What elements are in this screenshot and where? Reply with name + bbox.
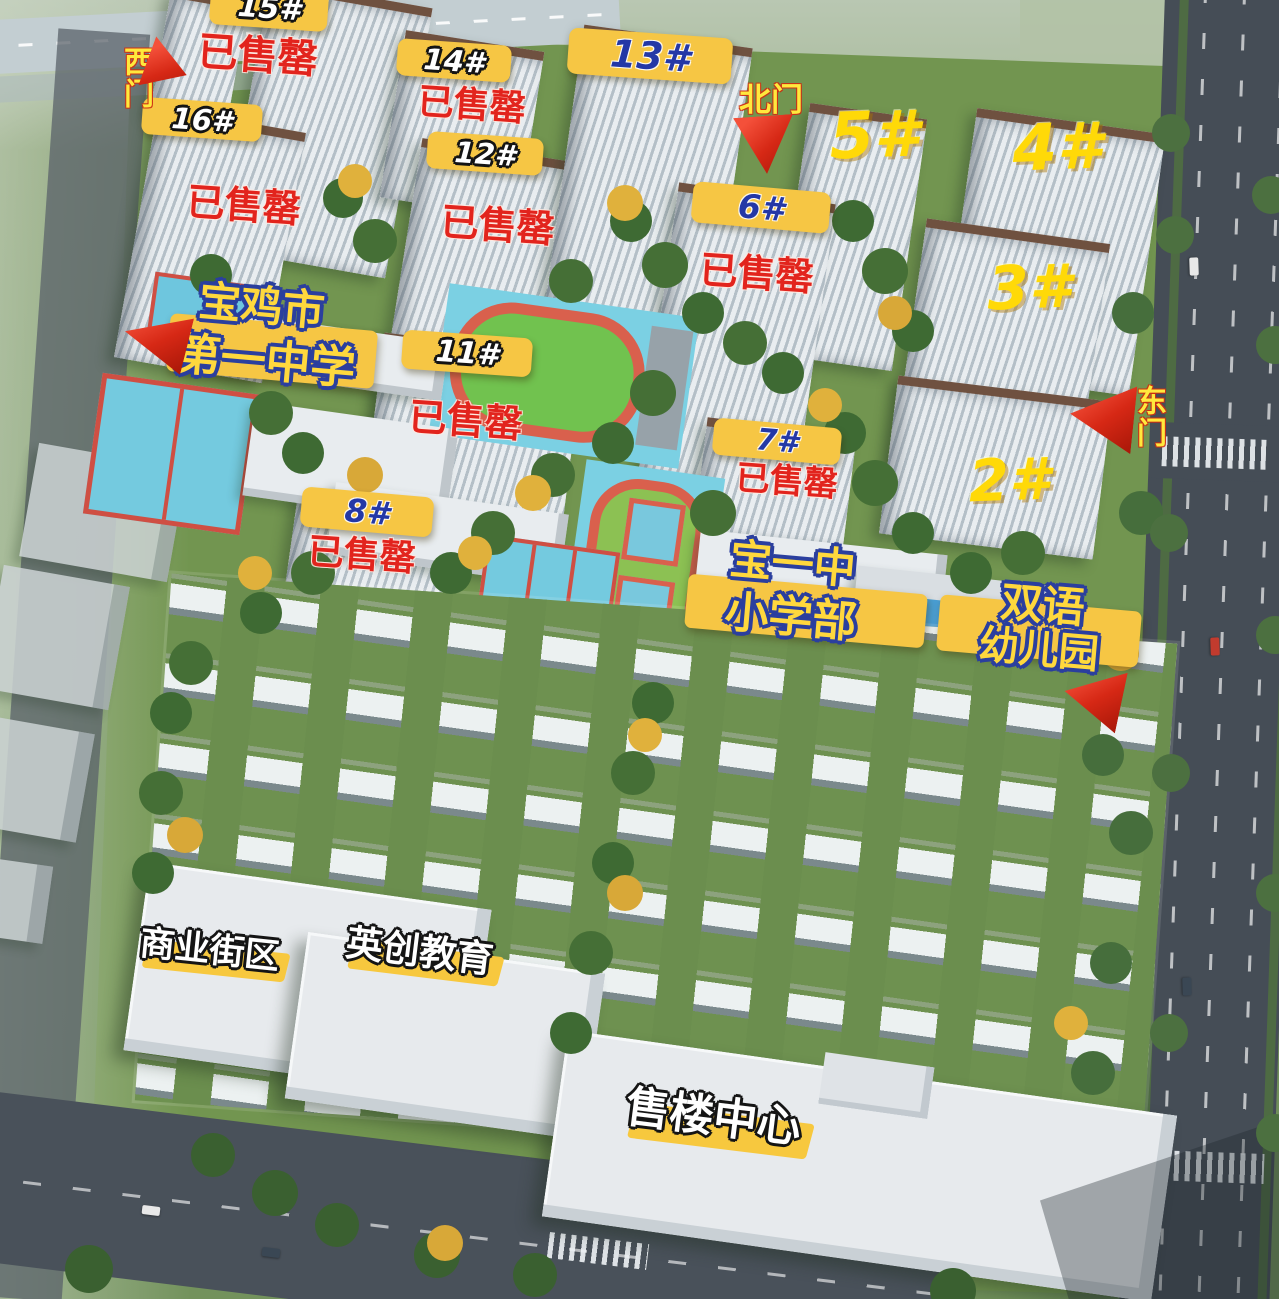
primary-school-label-line2: 小学部 — [722, 575, 859, 650]
car — [1189, 257, 1199, 275]
building-label-2: 2# — [967, 445, 1050, 516]
building-number: 6# — [736, 186, 785, 229]
infield-court — [621, 498, 687, 567]
kindergarten-label-line2: 幼儿园 — [977, 612, 1102, 680]
sold-out-label-6: 已售罄 — [698, 239, 816, 302]
building-number: 13# — [609, 31, 691, 80]
sold-out-label-12: 已售罄 — [439, 191, 557, 254]
gate-east-label: 东门 — [1136, 387, 1168, 452]
aerial-master-plan: 15# 16# 14# 12# 11# 13# 6# 7# 8# 已售罄 已售罄… — [0, 0, 1279, 1299]
sold-out-label-11: 已售罄 — [407, 386, 525, 449]
court-divider — [162, 389, 184, 520]
sold-out-label-7: 已售罄 — [734, 450, 839, 506]
gate-north-label: 北门 — [739, 83, 803, 118]
car — [1182, 977, 1192, 995]
car — [1210, 637, 1220, 655]
building-label-5: 5# — [828, 97, 920, 174]
crosswalk — [1162, 436, 1267, 470]
sold-out-label-15: 已售罄 — [196, 19, 320, 85]
building-number: 12# — [454, 134, 517, 172]
sold-out-label-16: 已售罄 — [185, 171, 303, 234]
sold-out-label-8: 已售罄 — [306, 522, 417, 581]
sold-out-label-14: 已售罄 — [416, 72, 527, 131]
building-label-4: 4# — [1011, 109, 1103, 186]
lane-marking — [1197, 0, 1246, 1299]
building-number: 16# — [171, 100, 234, 138]
building-label-3: 3# — [986, 252, 1072, 325]
existing-building — [0, 565, 130, 710]
basketball-courts — [83, 373, 259, 536]
roadside-trees — [0, 0, 26, 26]
building-number: 11# — [435, 334, 500, 373]
